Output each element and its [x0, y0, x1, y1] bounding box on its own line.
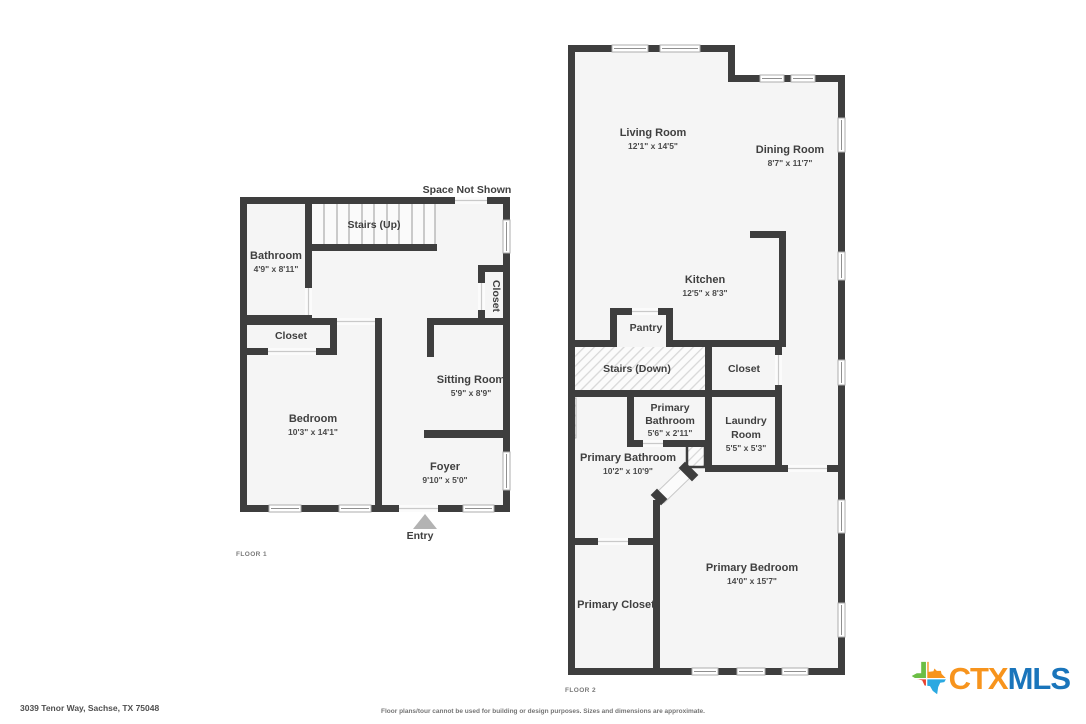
floorplan-page: Space Not Shown Stairs (Up) Bathroom 4'9…: [0, 0, 1086, 724]
logo-wordmark: CTXMLS: [949, 663, 1070, 694]
primary-bathroom-label: Primary Bathroom: [580, 452, 676, 464]
living-room-dims: 12'1" x 14'5": [628, 141, 678, 151]
bedroom-label: Bedroom: [289, 413, 338, 425]
bedroom-dims: 10'3" x 14'1": [288, 427, 338, 437]
window: [503, 220, 510, 253]
primary-closet-label: Primary Closet: [577, 599, 655, 611]
floorplan-drawing: Space Not Shown Stairs (Up) Bathroom 4'9…: [0, 0, 1086, 724]
window: [503, 452, 510, 490]
closet2-label: Closet: [728, 363, 761, 375]
window: [692, 668, 718, 675]
primary-bedroom-dims: 14'0" x 15'7": [727, 576, 777, 586]
sitting-room-label: Sitting Room: [437, 374, 506, 386]
laundry-line2: Room: [731, 429, 761, 441]
dining-room-dims: 8'7" x 11'7": [768, 158, 813, 168]
ctxmls-logo: CTXMLS: [911, 661, 1070, 695]
window: [838, 252, 845, 280]
living-room-label: Living Room: [620, 127, 687, 139]
logo-mls-text: MLS: [1008, 661, 1070, 696]
window: [838, 500, 845, 533]
laundry-line1: Laundry: [725, 415, 767, 427]
logo-ctx-text: CTX: [949, 661, 1008, 696]
primary-bathroom-small-dims: 5'6" x 2'11": [648, 428, 693, 438]
laundry-dims: 5'5" x 5'3": [726, 443, 766, 453]
entry-arrow-icon: [413, 514, 437, 529]
texas-icon: [911, 661, 947, 695]
dining-room-label: Dining Room: [756, 144, 825, 156]
window: [838, 360, 845, 385]
window: [737, 668, 765, 675]
kitchen-label: Kitchen: [685, 274, 726, 286]
pantry-label: Pantry: [630, 322, 663, 334]
sitting-room-dims: 5'9" x 8'9": [451, 388, 491, 398]
window: [791, 75, 815, 82]
hall-closet-label: Closet: [490, 280, 502, 313]
kitchen-dims: 12'5" x 8'3": [682, 288, 727, 298]
floor1-plan: Space Not Shown Stairs (Up) Bathroom 4'9…: [236, 184, 511, 558]
space-not-shown-label: Space Not Shown: [423, 184, 512, 196]
floor2-tag: FLOOR 2: [565, 687, 596, 694]
bathroom-dims: 4'9" x 8'11": [254, 264, 299, 274]
bathroom-label: Bathroom: [250, 250, 302, 262]
window: [463, 505, 494, 512]
foyer-dims: 9'10" x 5'0": [422, 475, 467, 485]
window: [269, 505, 301, 512]
primary-bathroom-small-line2: Bathroom: [645, 415, 695, 427]
window: [339, 505, 371, 512]
stairs-up-label: Stairs (Up): [347, 219, 400, 231]
floor1-tag: FLOOR 1: [236, 551, 267, 558]
window: [782, 668, 808, 675]
primary-bedroom-label: Primary Bedroom: [706, 562, 799, 574]
floor2-plan: Living Room 12'1" x 14'5" Dining Room 8'…: [565, 45, 845, 694]
stairs-down-label: Stairs (Down): [603, 363, 671, 375]
window: [838, 118, 845, 152]
window: [660, 45, 700, 52]
primary-bathroom-dims: 10'2" x 10'9": [603, 466, 653, 476]
disclaimer-text: Floor plans/tour cannot be used for buil…: [381, 708, 705, 715]
property-address: 3039 Tenor Way, Sachse, TX 75048: [20, 703, 159, 713]
primary-bathroom-small-line1: Primary: [650, 402, 689, 414]
window: [612, 45, 648, 52]
window: [760, 75, 784, 82]
closet-label: Closet: [275, 330, 308, 342]
entry-label: Entry: [407, 530, 434, 542]
foyer-label: Foyer: [430, 461, 461, 473]
window: [838, 603, 845, 637]
